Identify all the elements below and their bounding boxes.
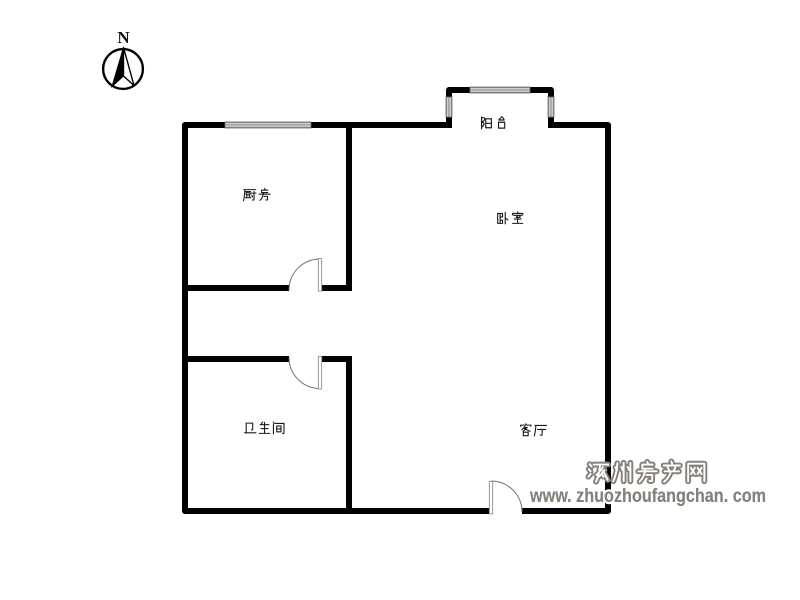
svg-text:www. zhuozhoufangchan. com: www. zhuozhoufangchan. com [529, 485, 766, 507]
svg-text:N: N [117, 28, 130, 47]
